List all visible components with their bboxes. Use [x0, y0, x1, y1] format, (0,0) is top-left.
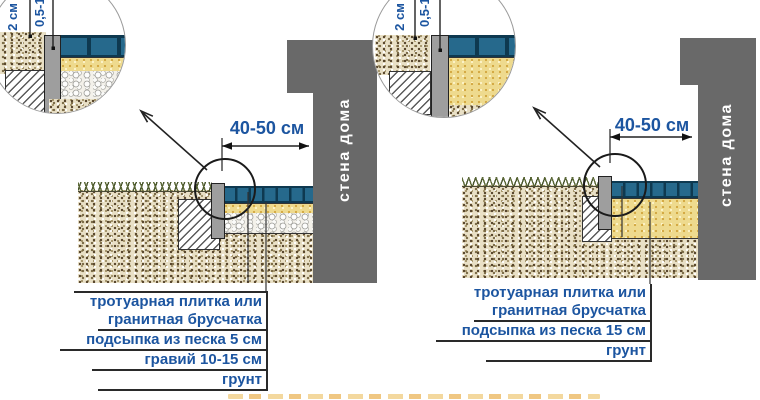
- arrowhead-icon: [534, 108, 546, 119]
- inset-dimension-b: 0,5-1 см: [417, 0, 433, 37]
- cropped-caption-fragment: [228, 394, 600, 399]
- grass: [462, 177, 600, 187]
- callout-block-right: тротуарная плитка или гранитная брусчатк…: [436, 284, 652, 362]
- house-wall-label: стена дома: [335, 68, 355, 232]
- callout-label: гранитная брусчатка: [98, 311, 266, 331]
- dimension-arrowhead: [222, 142, 232, 150]
- sand-layer: [449, 57, 515, 107]
- callout-label: гравий 10-15 см: [92, 351, 266, 371]
- inset-dimension-b: 0,5-1 см: [32, 0, 48, 37]
- detail-callout-arrow-icon: [143, 113, 207, 170]
- inset-dimension-a: 2 см: [5, 0, 21, 37]
- house-wall-label: стена дома: [717, 73, 737, 237]
- concrete-hatch: [389, 71, 431, 115]
- paving-tiles-layer: [61, 35, 125, 57]
- ground-texture: [49, 99, 125, 113]
- detail-circle-marker: [583, 153, 647, 217]
- gravel-layer: [61, 71, 125, 100]
- callout-label: грунт: [486, 342, 650, 362]
- concrete-hatch: [5, 70, 46, 114]
- width-dimension-label: 40-50 см: [608, 115, 696, 137]
- ground-texture: [0, 32, 46, 74]
- ground-texture: [375, 35, 430, 75]
- callout-label: тротуарная плитка или: [436, 284, 650, 302]
- detail-circle-marker: [194, 158, 256, 220]
- dimension-arrowhead: [299, 142, 309, 150]
- callout-block-left: тротуарная плитка или гранитная брусчатк…: [60, 291, 268, 391]
- callout-label: гранитная брусчатка: [474, 302, 650, 322]
- arrowhead-icon: [141, 111, 153, 122]
- paving-tiles-layer: [449, 35, 515, 57]
- grass: [78, 182, 212, 192]
- curb-stone: [431, 35, 449, 118]
- paving-installation-diagram: 2 см 0,5-1 см стена дома 40-50 см тротуа…: [0, 0, 760, 400]
- ground-texture: [449, 105, 515, 117]
- width-dimension-label: 40-50 см: [222, 118, 312, 140]
- callout-label: подсыпка из песка 15 см: [436, 322, 650, 342]
- inset-dimension-a: 2 см: [392, 0, 408, 37]
- detail-callout-arrow-icon: [536, 110, 600, 167]
- callout-label: подсыпка из песка 5 см: [60, 331, 266, 351]
- callout-label: тротуарная плитка или: [74, 291, 266, 311]
- callout-label: грунт: [98, 371, 266, 391]
